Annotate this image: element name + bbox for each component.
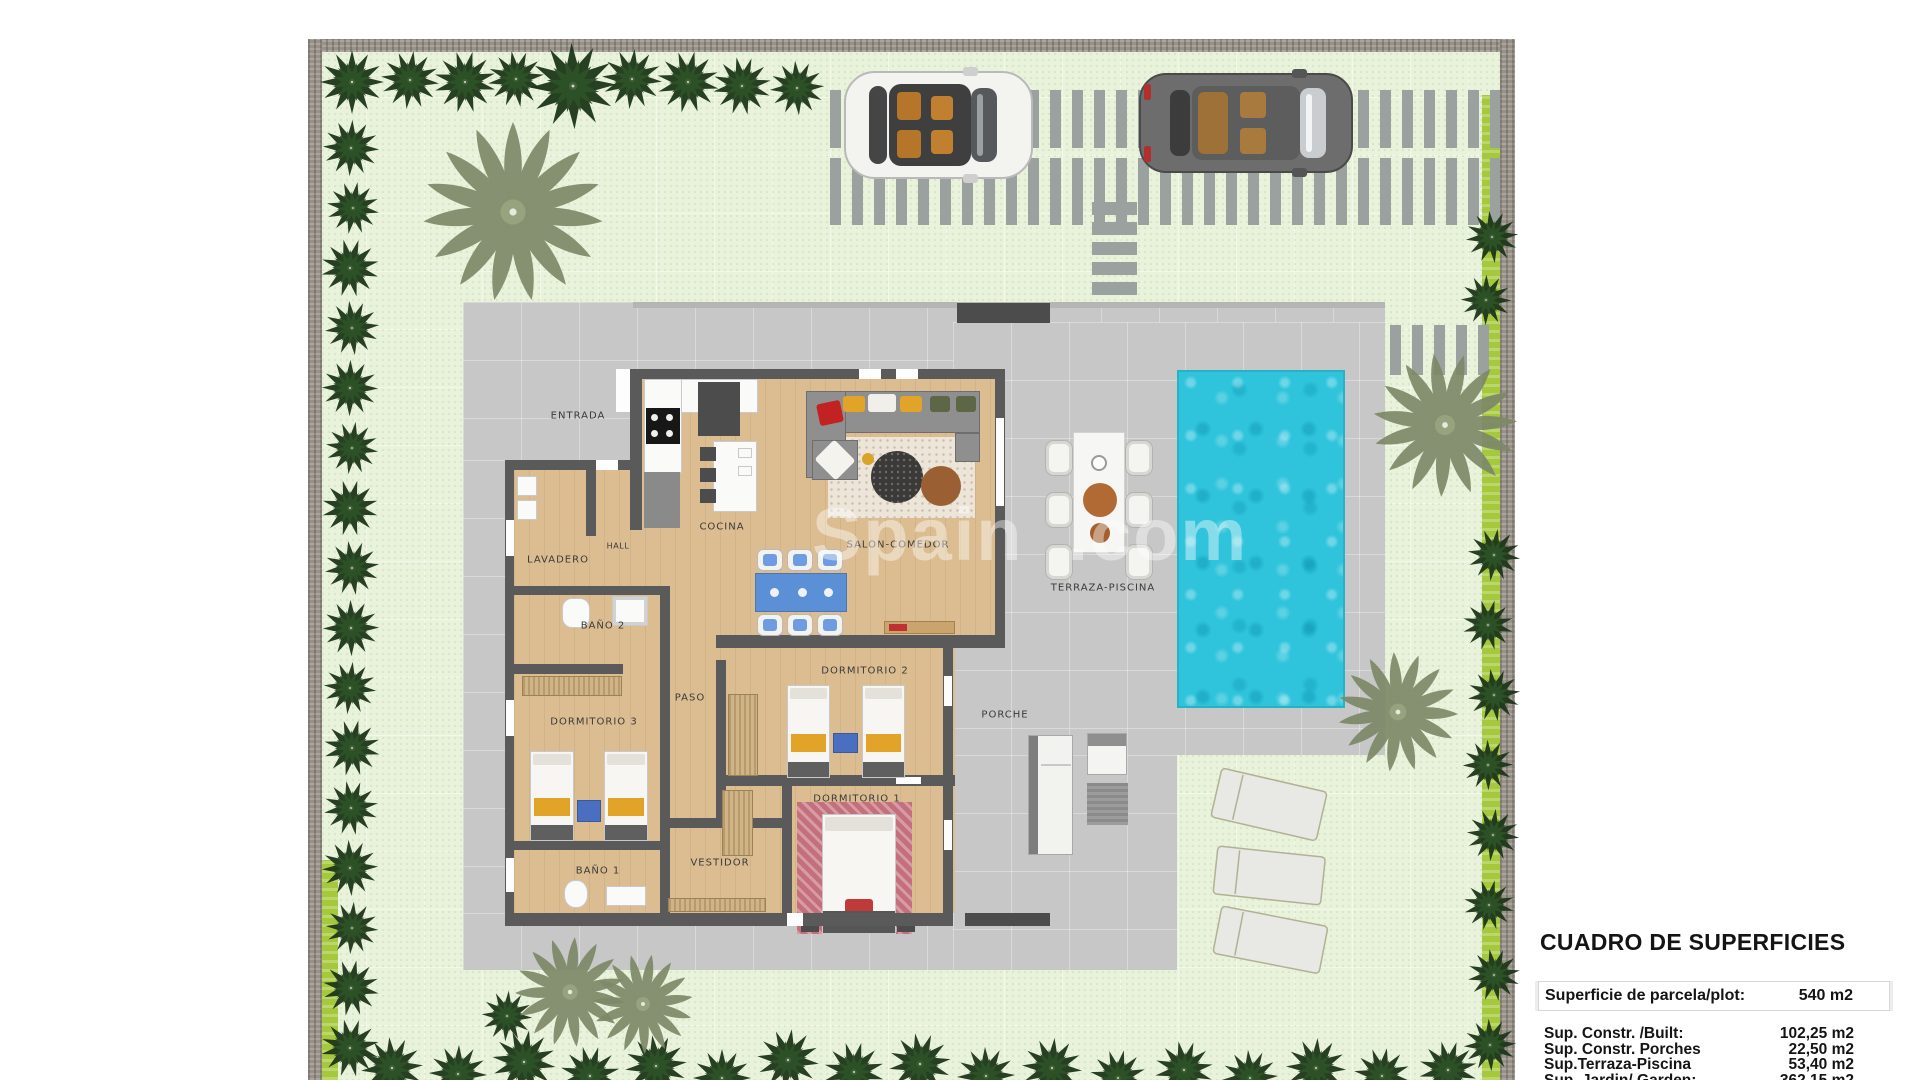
bed-twin bbox=[604, 751, 648, 841]
paving-entrada bbox=[463, 302, 633, 460]
parcel-value: 540 m2 bbox=[1769, 987, 1881, 1005]
label-dormitorio-2: DORMITORIO 2 bbox=[821, 666, 908, 677]
washer bbox=[517, 476, 537, 496]
porche-lounger bbox=[1028, 735, 1073, 855]
wall-dorm3-bano1 bbox=[514, 841, 660, 850]
wall-vestidor-north bbox=[660, 818, 782, 828]
pillow-white bbox=[868, 394, 896, 412]
parcel-row: Superficie de parcela/plot: 540 m2 bbox=[1538, 981, 1890, 1011]
window-west bbox=[506, 858, 514, 892]
boundary-wall-top bbox=[308, 39, 1515, 52]
wall-hall-lavadero bbox=[586, 470, 596, 536]
stool bbox=[700, 489, 716, 503]
wardrobe-vestidor bbox=[668, 898, 766, 912]
surface-table-title: CUADRO DE SUPERFICIES bbox=[1540, 929, 1845, 956]
door-dorm1 bbox=[896, 777, 921, 784]
wall-bano2-dorm3 bbox=[514, 664, 623, 674]
pillow-yellow bbox=[843, 396, 865, 412]
window-west bbox=[506, 520, 514, 556]
window-east bbox=[944, 820, 952, 850]
dryer bbox=[517, 500, 537, 520]
boundary-wall-right bbox=[1500, 39, 1515, 1080]
window-east bbox=[944, 676, 952, 706]
path-horizontal bbox=[1390, 325, 1498, 375]
surface-row: Sup. Jardin/ Garden:362,15 m2 bbox=[1538, 1073, 1890, 1080]
label-terraza-piscina: TERRAZA-PISCINA bbox=[1051, 583, 1155, 594]
porche-side-table bbox=[1087, 733, 1127, 775]
pillow-olive bbox=[956, 396, 976, 412]
label-bano-2: BAÑO 2 bbox=[581, 621, 626, 632]
watermark: Spain.com bbox=[812, 492, 1248, 577]
dining-chair bbox=[757, 614, 783, 636]
label-hall: HALL bbox=[607, 542, 630, 551]
terrace-wall-stub bbox=[957, 303, 1050, 323]
sofa-return-right bbox=[955, 433, 980, 462]
label-dormitorio-1: DORMITORIO 1 bbox=[813, 794, 900, 805]
bed-twin bbox=[787, 685, 830, 778]
dining-chair bbox=[787, 549, 813, 571]
label-porche: PORCHE bbox=[981, 710, 1028, 721]
door-lavadero bbox=[596, 460, 618, 470]
wardrobe-dorm2 bbox=[728, 694, 758, 776]
dining-chair bbox=[757, 549, 783, 571]
island-sink bbox=[738, 466, 752, 476]
wall-kitchen-west bbox=[630, 369, 642, 530]
stool bbox=[700, 468, 716, 482]
floor-lamp bbox=[862, 453, 874, 465]
label-vestidor: VESTIDOR bbox=[690, 858, 749, 869]
dining-chair bbox=[817, 614, 843, 636]
house-wall-south bbox=[505, 913, 953, 926]
parking-stripes-row1 bbox=[830, 90, 1500, 148]
surface-row: Sup. Constr. /Built:102,25 m2 bbox=[1538, 1026, 1890, 1042]
label-bano-1: BAÑO 1 bbox=[576, 866, 621, 877]
label-lavadero: LAVADERO bbox=[527, 555, 589, 566]
dining-table bbox=[755, 573, 847, 612]
dining-chair bbox=[787, 614, 813, 636]
nightstand bbox=[833, 733, 858, 753]
label-entrada: ENTRADA bbox=[551, 411, 606, 422]
wardrobe-dorm1 bbox=[722, 790, 753, 856]
wall-bano2-top bbox=[508, 586, 670, 595]
surface-row: Sup.Terraza-Piscina53,40 m2 bbox=[1538, 1057, 1890, 1073]
window-north bbox=[859, 369, 881, 379]
island-sink bbox=[738, 448, 752, 458]
parcel-label: Superficie de parcela/plot: bbox=[1545, 987, 1745, 1005]
wardrobe-dorm3 bbox=[522, 676, 622, 696]
wall-salon-south bbox=[716, 635, 1005, 648]
bed-twin bbox=[530, 751, 574, 841]
vanity-bano1 bbox=[606, 886, 646, 906]
label-cocina: COCINA bbox=[699, 522, 744, 533]
porche-mat bbox=[1087, 783, 1128, 825]
label-paso: PASO bbox=[675, 693, 705, 704]
surface-row: Sup. Constr. Porches22,50 m2 bbox=[1538, 1042, 1890, 1058]
hedge-left bbox=[322, 860, 338, 1080]
stove bbox=[646, 408, 680, 444]
kitchen-appliance-block bbox=[698, 382, 740, 436]
parking-stripes-row2 bbox=[830, 158, 1500, 225]
house-wall-north bbox=[630, 369, 1005, 379]
hedge-right bbox=[1482, 95, 1500, 1080]
door-south bbox=[787, 913, 803, 926]
pillow-yellow bbox=[900, 396, 922, 412]
wall-paso-west bbox=[660, 594, 670, 913]
surface-rows: Sup. Constr. /Built:102,25 m2 Sup. Const… bbox=[1538, 1026, 1890, 1080]
floor-plan-page: ENTRADA COCINA SALON-COMEDOR LAVADERO HA… bbox=[0, 0, 1920, 1080]
window-west bbox=[506, 700, 514, 736]
front-door bbox=[616, 369, 630, 412]
nightstand bbox=[577, 800, 601, 822]
pillow-olive bbox=[930, 396, 950, 412]
boundary-wall-left bbox=[308, 39, 322, 1080]
toilet-bano1 bbox=[564, 880, 588, 908]
tv-unit bbox=[884, 621, 955, 634]
stool bbox=[700, 447, 716, 461]
kitchen-cabinet bbox=[644, 472, 680, 528]
label-dormitorio-3: DORMITORIO 3 bbox=[550, 717, 637, 728]
paving-west-strip bbox=[463, 460, 505, 970]
bed-twin bbox=[862, 685, 905, 778]
wall-vestidor-east bbox=[782, 786, 792, 913]
terrace-chair bbox=[1125, 440, 1153, 476]
porche-bench bbox=[965, 913, 1050, 926]
terrace-chair bbox=[1045, 440, 1073, 476]
window-north bbox=[896, 369, 918, 379]
